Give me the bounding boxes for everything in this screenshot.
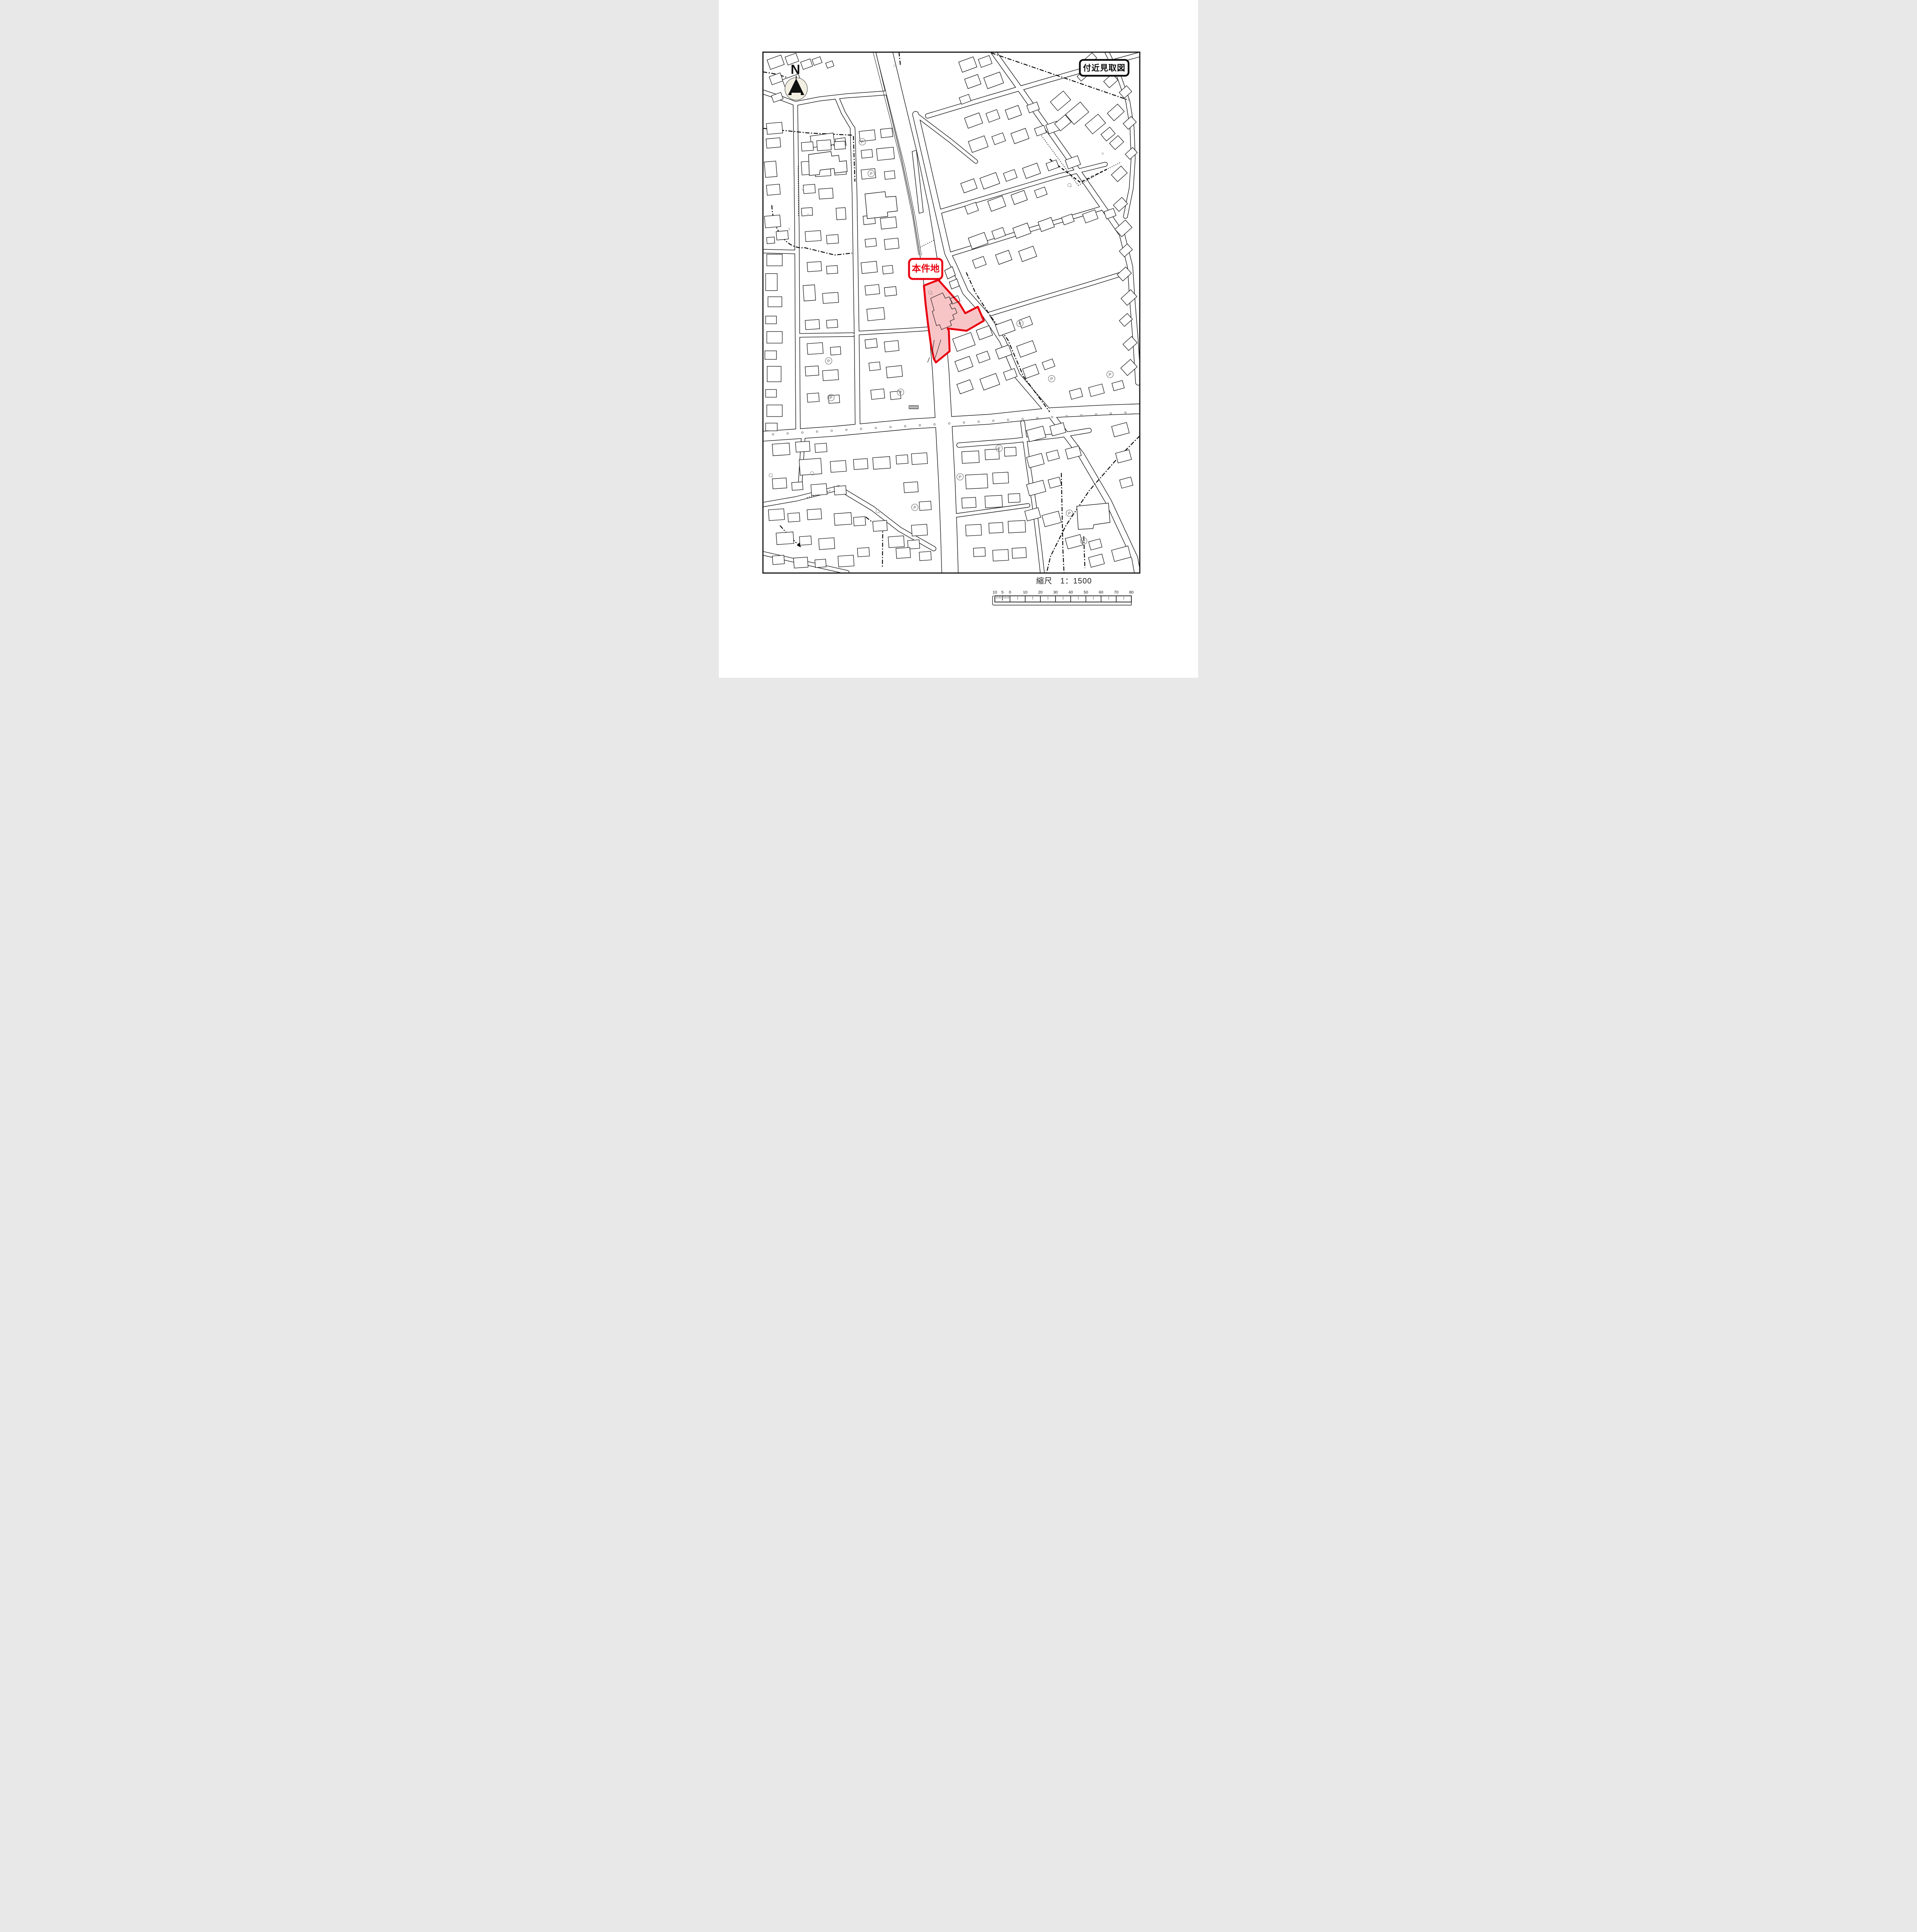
building (803, 184, 815, 194)
building (819, 538, 835, 550)
building (853, 517, 865, 526)
building (817, 140, 831, 151)
building (815, 559, 826, 568)
building (801, 142, 813, 151)
building (877, 147, 895, 160)
building (822, 370, 839, 381)
vegetation-symbol: ∨ (788, 226, 791, 231)
north-label: N (791, 62, 800, 77)
building (838, 555, 854, 567)
building (767, 366, 781, 382)
building (836, 207, 846, 220)
building (799, 536, 811, 545)
parking-symbol-letter: P (829, 396, 832, 400)
parking-symbol-letter: P (861, 140, 863, 145)
parking-symbol-letter: P (1050, 377, 1053, 381)
building (765, 351, 776, 359)
building (896, 548, 911, 558)
road-surface (798, 335, 853, 335)
building (861, 150, 873, 158)
building (989, 522, 1003, 533)
building (867, 308, 885, 321)
building (1008, 520, 1026, 533)
building (853, 459, 868, 469)
building (807, 509, 822, 520)
scale-bar-label: 80 (1129, 590, 1134, 595)
building (871, 389, 885, 399)
building (793, 557, 808, 568)
vegetation-symbol: ∨ (807, 212, 810, 217)
parking-symbol-letter: P (958, 475, 961, 480)
building (811, 484, 827, 496)
building (919, 551, 931, 561)
svg-text:縮尺 1：1500: 縮尺 1：1500 (1036, 577, 1092, 585)
scale-bar-label: 70 (1114, 590, 1119, 595)
building (1012, 548, 1026, 558)
building (830, 347, 841, 355)
building (834, 486, 846, 495)
scale-prefix: 縮尺 (1036, 577, 1052, 585)
parking-symbol-letter: P (1082, 539, 1085, 544)
building (766, 316, 776, 324)
building (767, 332, 782, 343)
building (888, 536, 904, 548)
building (776, 532, 794, 545)
building (807, 393, 819, 402)
scale-bar-label: 60 (1099, 590, 1103, 595)
building (861, 261, 878, 274)
scale-bar-label: 50 (1084, 590, 1088, 595)
building (776, 231, 788, 240)
parking-symbol-letter: P (998, 446, 1000, 451)
building (919, 501, 931, 510)
building (766, 184, 780, 196)
building (767, 405, 782, 417)
parking-symbol-letter: P (1108, 372, 1111, 377)
building (826, 235, 838, 244)
building (830, 461, 846, 473)
building (962, 451, 979, 463)
building (766, 423, 777, 431)
building (766, 237, 775, 244)
scale-bar-label: 10 (1023, 590, 1028, 595)
building (884, 340, 899, 352)
building (911, 524, 928, 536)
building (869, 362, 880, 371)
building (880, 217, 897, 229)
title-box: 付近見取図 (1080, 60, 1129, 76)
building (788, 513, 800, 522)
building (884, 238, 899, 250)
building (815, 443, 827, 452)
building (861, 168, 876, 179)
building (1004, 447, 1016, 456)
building (795, 441, 810, 452)
building (1008, 493, 1020, 503)
building (865, 284, 880, 295)
building (880, 128, 893, 138)
map-sheet: PPPPPPPPPPPPP☼☼∨∨∨∨∨ N 付近見取図 本件地 縮尺 1：15… (719, 0, 1198, 678)
scale-bar-label: 0 (1009, 590, 1011, 595)
building (857, 548, 869, 557)
building (772, 478, 787, 489)
building (805, 320, 820, 330)
road-surface (795, 104, 798, 434)
building (819, 188, 833, 199)
building (826, 265, 838, 274)
building (965, 474, 988, 489)
building (873, 457, 890, 469)
building (904, 482, 918, 493)
parking-symbol-letter: P (899, 390, 902, 395)
building (766, 389, 776, 397)
site-label: 本件地 (912, 264, 940, 274)
parking-symbol-letter: P (870, 172, 872, 176)
building (834, 141, 845, 150)
building (973, 548, 985, 557)
building (766, 122, 783, 134)
building (792, 482, 803, 490)
scale-bar-label: 5 (1001, 590, 1004, 595)
building (865, 338, 877, 348)
building (884, 171, 895, 180)
building (768, 509, 785, 521)
building (764, 215, 781, 228)
building (766, 274, 777, 291)
building (807, 262, 822, 272)
vegetation-symbol: ∨ (1091, 173, 1094, 179)
building (764, 161, 777, 177)
scale-caption: 縮尺 1：1500 (1036, 577, 1092, 585)
road-surface (763, 251, 795, 252)
building (807, 343, 823, 355)
facility-symbol: ☼ (892, 62, 897, 68)
building (985, 495, 1003, 508)
building (767, 254, 782, 266)
building (896, 455, 908, 464)
vicinity-map: PPPPPPPPPPPPP☼☼∨∨∨∨∨ N 付近見取図 本件地 縮尺 1：15… (719, 0, 1198, 678)
building (834, 513, 852, 526)
building (882, 265, 893, 274)
vegetation-symbol: ∨ (1101, 151, 1105, 156)
building (772, 555, 784, 565)
building (993, 472, 1008, 484)
building (873, 520, 887, 531)
building (768, 297, 782, 307)
building (822, 293, 839, 304)
building (826, 320, 838, 328)
building (884, 286, 897, 296)
parking-symbol-letter: P (827, 359, 830, 364)
building (993, 549, 1008, 561)
building (803, 285, 816, 301)
parking-symbol-letter: P (1068, 511, 1071, 516)
site-callout: 本件地 (909, 259, 942, 279)
vegetation-symbol: ∨ (801, 186, 805, 192)
building (911, 453, 928, 465)
building (962, 497, 976, 508)
parking-symbol-letter: P (913, 505, 916, 510)
building (965, 524, 981, 536)
parking-symbol-letter: P (1018, 321, 1021, 326)
building (805, 366, 819, 376)
scale-bar-label: 10 (993, 590, 997, 595)
building (766, 138, 781, 148)
scale-bar-label: 30 (1053, 590, 1058, 595)
scale-bar-label: 20 (1038, 590, 1043, 595)
building (886, 366, 903, 378)
building (772, 443, 790, 456)
building (865, 238, 877, 247)
building (805, 231, 821, 242)
page-title: 付近見取図 (1083, 63, 1125, 73)
scale-bar-label: 40 (1068, 590, 1073, 595)
scale-ratio: 1：1500 (1060, 577, 1092, 585)
